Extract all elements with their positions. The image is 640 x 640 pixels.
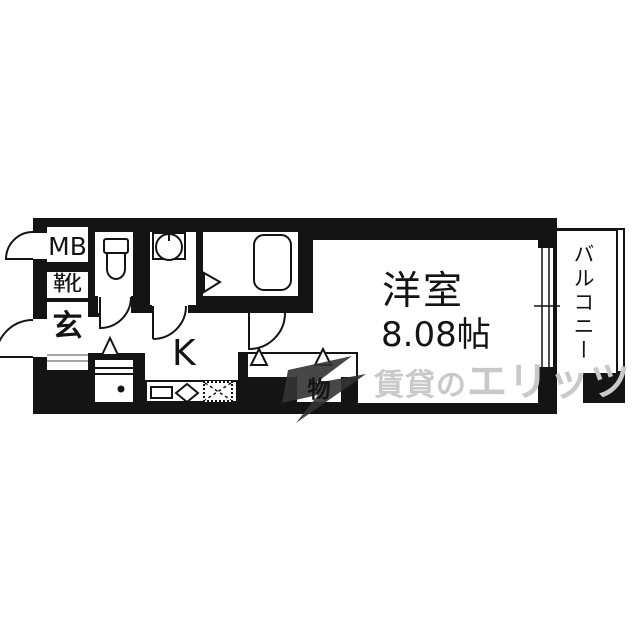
balcony-label: バルコニー — [572, 243, 593, 378]
watermark-prefix: 賃貸の — [374, 368, 467, 403]
plan-glyphs — [0, 0, 640, 640]
entrance-label: 玄 — [47, 312, 88, 342]
closet-triangle-marker-left — [251, 349, 267, 365]
bathroom-folding-door-marker — [204, 273, 220, 292]
kitchen-label: K — [172, 336, 196, 372]
watermark-text: 賃貸のエリッツ — [374, 362, 631, 402]
refrigerator-lines — [95, 368, 133, 374]
toilet-tank-icon — [104, 239, 128, 253]
refrigerator-handle-dot — [118, 386, 125, 393]
stove-hatch-lines — [205, 383, 231, 400]
floorplan-image: MB 靴 玄 K 物 洋室 8.08帖 バルコニー 賃貸のエリッツ — [0, 0, 640, 640]
main-room-door-icon — [249, 313, 285, 350]
storage-label: 物 — [297, 379, 341, 402]
burner-diamond-icon — [176, 384, 198, 402]
entrance-step-lines — [47, 355, 88, 361]
western-room-size: 8.08帖 — [381, 318, 491, 352]
mb-door-swing-icon — [6, 232, 33, 259]
watermark-brand: エリッツ — [467, 359, 631, 405]
toilet-door-icon — [100, 297, 131, 329]
western-room-name: 洋室 — [382, 272, 464, 311]
toilet-bowl-icon — [107, 253, 125, 279]
shoe-cabinet-label: 靴 — [40, 275, 95, 296]
meter-box-label: MB — [47, 234, 88, 259]
entrance-door-swing-icon — [0, 320, 33, 357]
hall-triangle-marker — [102, 338, 118, 355]
sliding-window-icon — [542, 248, 549, 367]
